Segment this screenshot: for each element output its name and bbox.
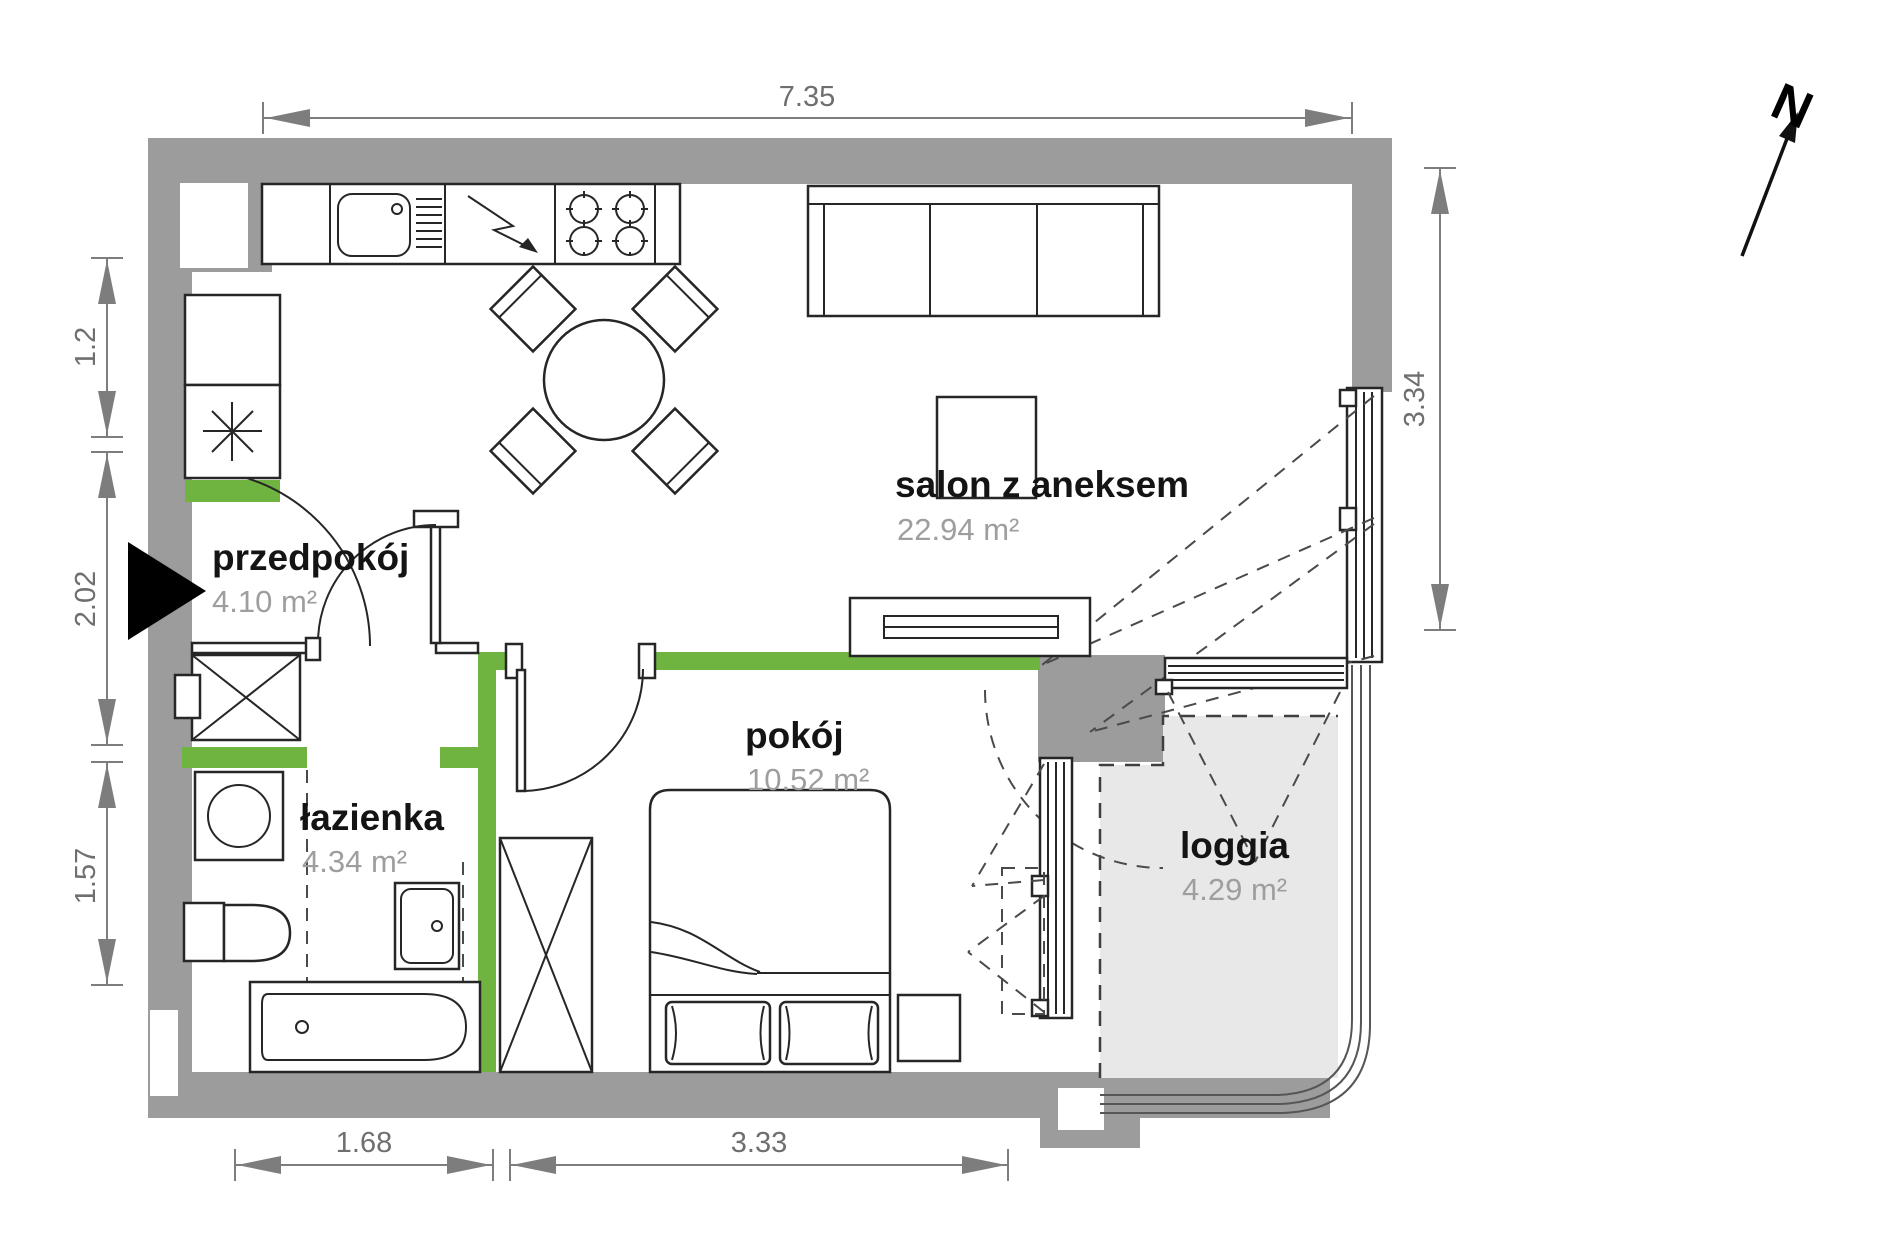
salon-window-handle-mid <box>1340 508 1356 530</box>
bedroom-window-handle-mid <box>1032 876 1048 896</box>
bedroom-furniture <box>500 790 960 1072</box>
wall-notch-bottom-left <box>150 1010 178 1096</box>
dimension-label: 2.02 <box>70 571 102 627</box>
wall-left <box>148 138 192 1118</box>
green-wall-bath-left <box>182 747 307 768</box>
salon-window-handle-top <box>1340 390 1356 406</box>
bathtub <box>250 982 480 1072</box>
north-arrow-line <box>1742 136 1788 256</box>
dimension-label: 3.34 <box>1399 371 1431 427</box>
dimension-right: 3.34 <box>1399 168 1456 630</box>
dimension-top: 7.35 <box>263 81 1352 134</box>
closet-shelf <box>175 675 200 718</box>
dimension-left-2: 2.02 <box>70 452 123 745</box>
green-wall-bath-right <box>440 747 478 768</box>
sofa <box>808 186 1159 316</box>
pillow-left <box>666 1002 770 1064</box>
room-name: przedpokój <box>212 537 409 578</box>
dimension-bottom-1: 1.68 <box>235 1127 493 1181</box>
dimension-left-1: 1.2 <box>70 258 123 437</box>
nightstand <box>898 995 960 1061</box>
wall-top <box>148 138 1392 184</box>
kitchen-counter <box>262 184 680 264</box>
floor-plan: przedpokój 4.10 m² salon z aneksem 22.94… <box>0 0 1900 1260</box>
dimension-label: 1.68 <box>336 1127 392 1159</box>
washbasin <box>395 883 459 969</box>
wall-bottom <box>148 1072 1080 1118</box>
bedroom-window <box>968 758 1072 1018</box>
bedroom-door-arc <box>521 669 643 791</box>
salon-door-opening-dash <box>1042 396 1374 665</box>
dimension-label: 7.35 <box>779 81 835 113</box>
floor-plan-page: przedpokój 4.10 m² salon z aneksem 22.94… <box>0 0 1900 1260</box>
green-wall-stub-door <box>478 652 508 670</box>
dimension-label: 3.33 <box>731 1127 787 1159</box>
green-wall-kitchen <box>185 480 280 502</box>
bedroom-door-leaf <box>517 670 525 791</box>
wall-shaft-niche <box>180 183 248 268</box>
wall-hall-bath-left <box>192 643 318 653</box>
room-area: 10.52 m² <box>747 762 869 797</box>
room-name: łazienka <box>300 797 444 838</box>
toilet <box>184 903 290 961</box>
dimension-bottom-2: 3.33 <box>510 1127 1008 1181</box>
dining-table <box>491 267 718 494</box>
room-area: 4.10 m² <box>212 584 317 619</box>
freezer-cabinet-snowflake <box>185 385 280 478</box>
washing-machine <box>195 772 283 860</box>
bathroom-door-jamb <box>306 638 320 660</box>
salon-window-opening-dash <box>1090 524 1374 732</box>
bathroom-door-leaf <box>431 525 440 643</box>
wall-hall-bath-right <box>436 643 478 653</box>
room-name: loggia <box>1180 825 1289 866</box>
north-arrow: N <box>1742 72 1821 256</box>
wall-step-notch <box>1058 1088 1104 1130</box>
bed <box>650 790 890 1072</box>
bedroom-window-dash-2 <box>968 896 1044 1012</box>
wall-corner-loggia <box>1038 655 1165 762</box>
room-area: 4.29 m² <box>1182 872 1287 907</box>
loggia-door-handle <box>1156 680 1172 694</box>
kitchen-cabinet <box>185 295 280 385</box>
dimension-label: 1.2 <box>70 327 102 367</box>
dimension-label: 1.57 <box>70 848 102 904</box>
room-label-salon: salon z aneksem 22.94 m² <box>895 464 1189 547</box>
room-label-przedpokoj: przedpokój 4.10 m² <box>212 537 409 619</box>
room-area: 22.94 m² <box>897 512 1019 547</box>
bedroom-door-jamb-right <box>639 644 655 678</box>
room-name: salon z aneksem <box>895 464 1189 505</box>
wall-right-upper <box>1352 138 1392 392</box>
room-area: 4.34 m² <box>302 844 407 879</box>
tv-sideboard <box>850 598 1090 656</box>
room-label-pokoj: pokój 10.52 m² <box>745 715 869 797</box>
interior-walls-doors <box>128 470 655 791</box>
kitchen-drainer <box>416 199 442 247</box>
pillow-right <box>780 1002 878 1064</box>
dimension-left-3: 1.57 <box>70 762 123 985</box>
north-label: N <box>1763 72 1821 140</box>
room-name: pokój <box>745 715 844 756</box>
hall-closet <box>175 655 300 740</box>
room-label-lazienka: łazienka 4.34 m² <box>300 797 444 879</box>
wardrobe <box>500 838 592 1072</box>
